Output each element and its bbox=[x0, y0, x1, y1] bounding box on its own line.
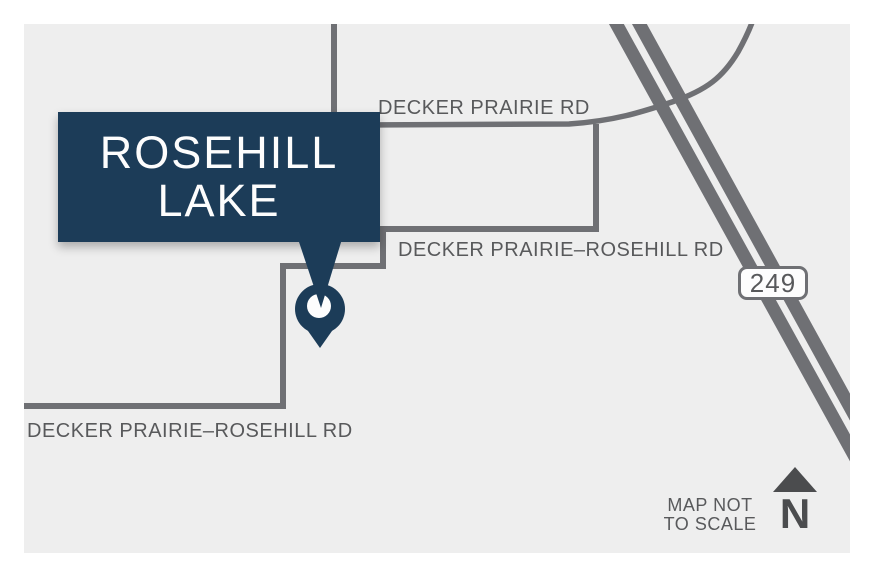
map-canvas: DECKER PRAIRIE RD DECKER PRAIRIE–ROSEHIL… bbox=[24, 24, 850, 553]
pin-layer bbox=[24, 24, 850, 553]
location-pin-icon bbox=[295, 239, 345, 348]
pin-tip bbox=[301, 321, 339, 348]
page-background: DECKER PRAIRIE RD DECKER PRAIRIE–ROSEHIL… bbox=[0, 0, 890, 575]
